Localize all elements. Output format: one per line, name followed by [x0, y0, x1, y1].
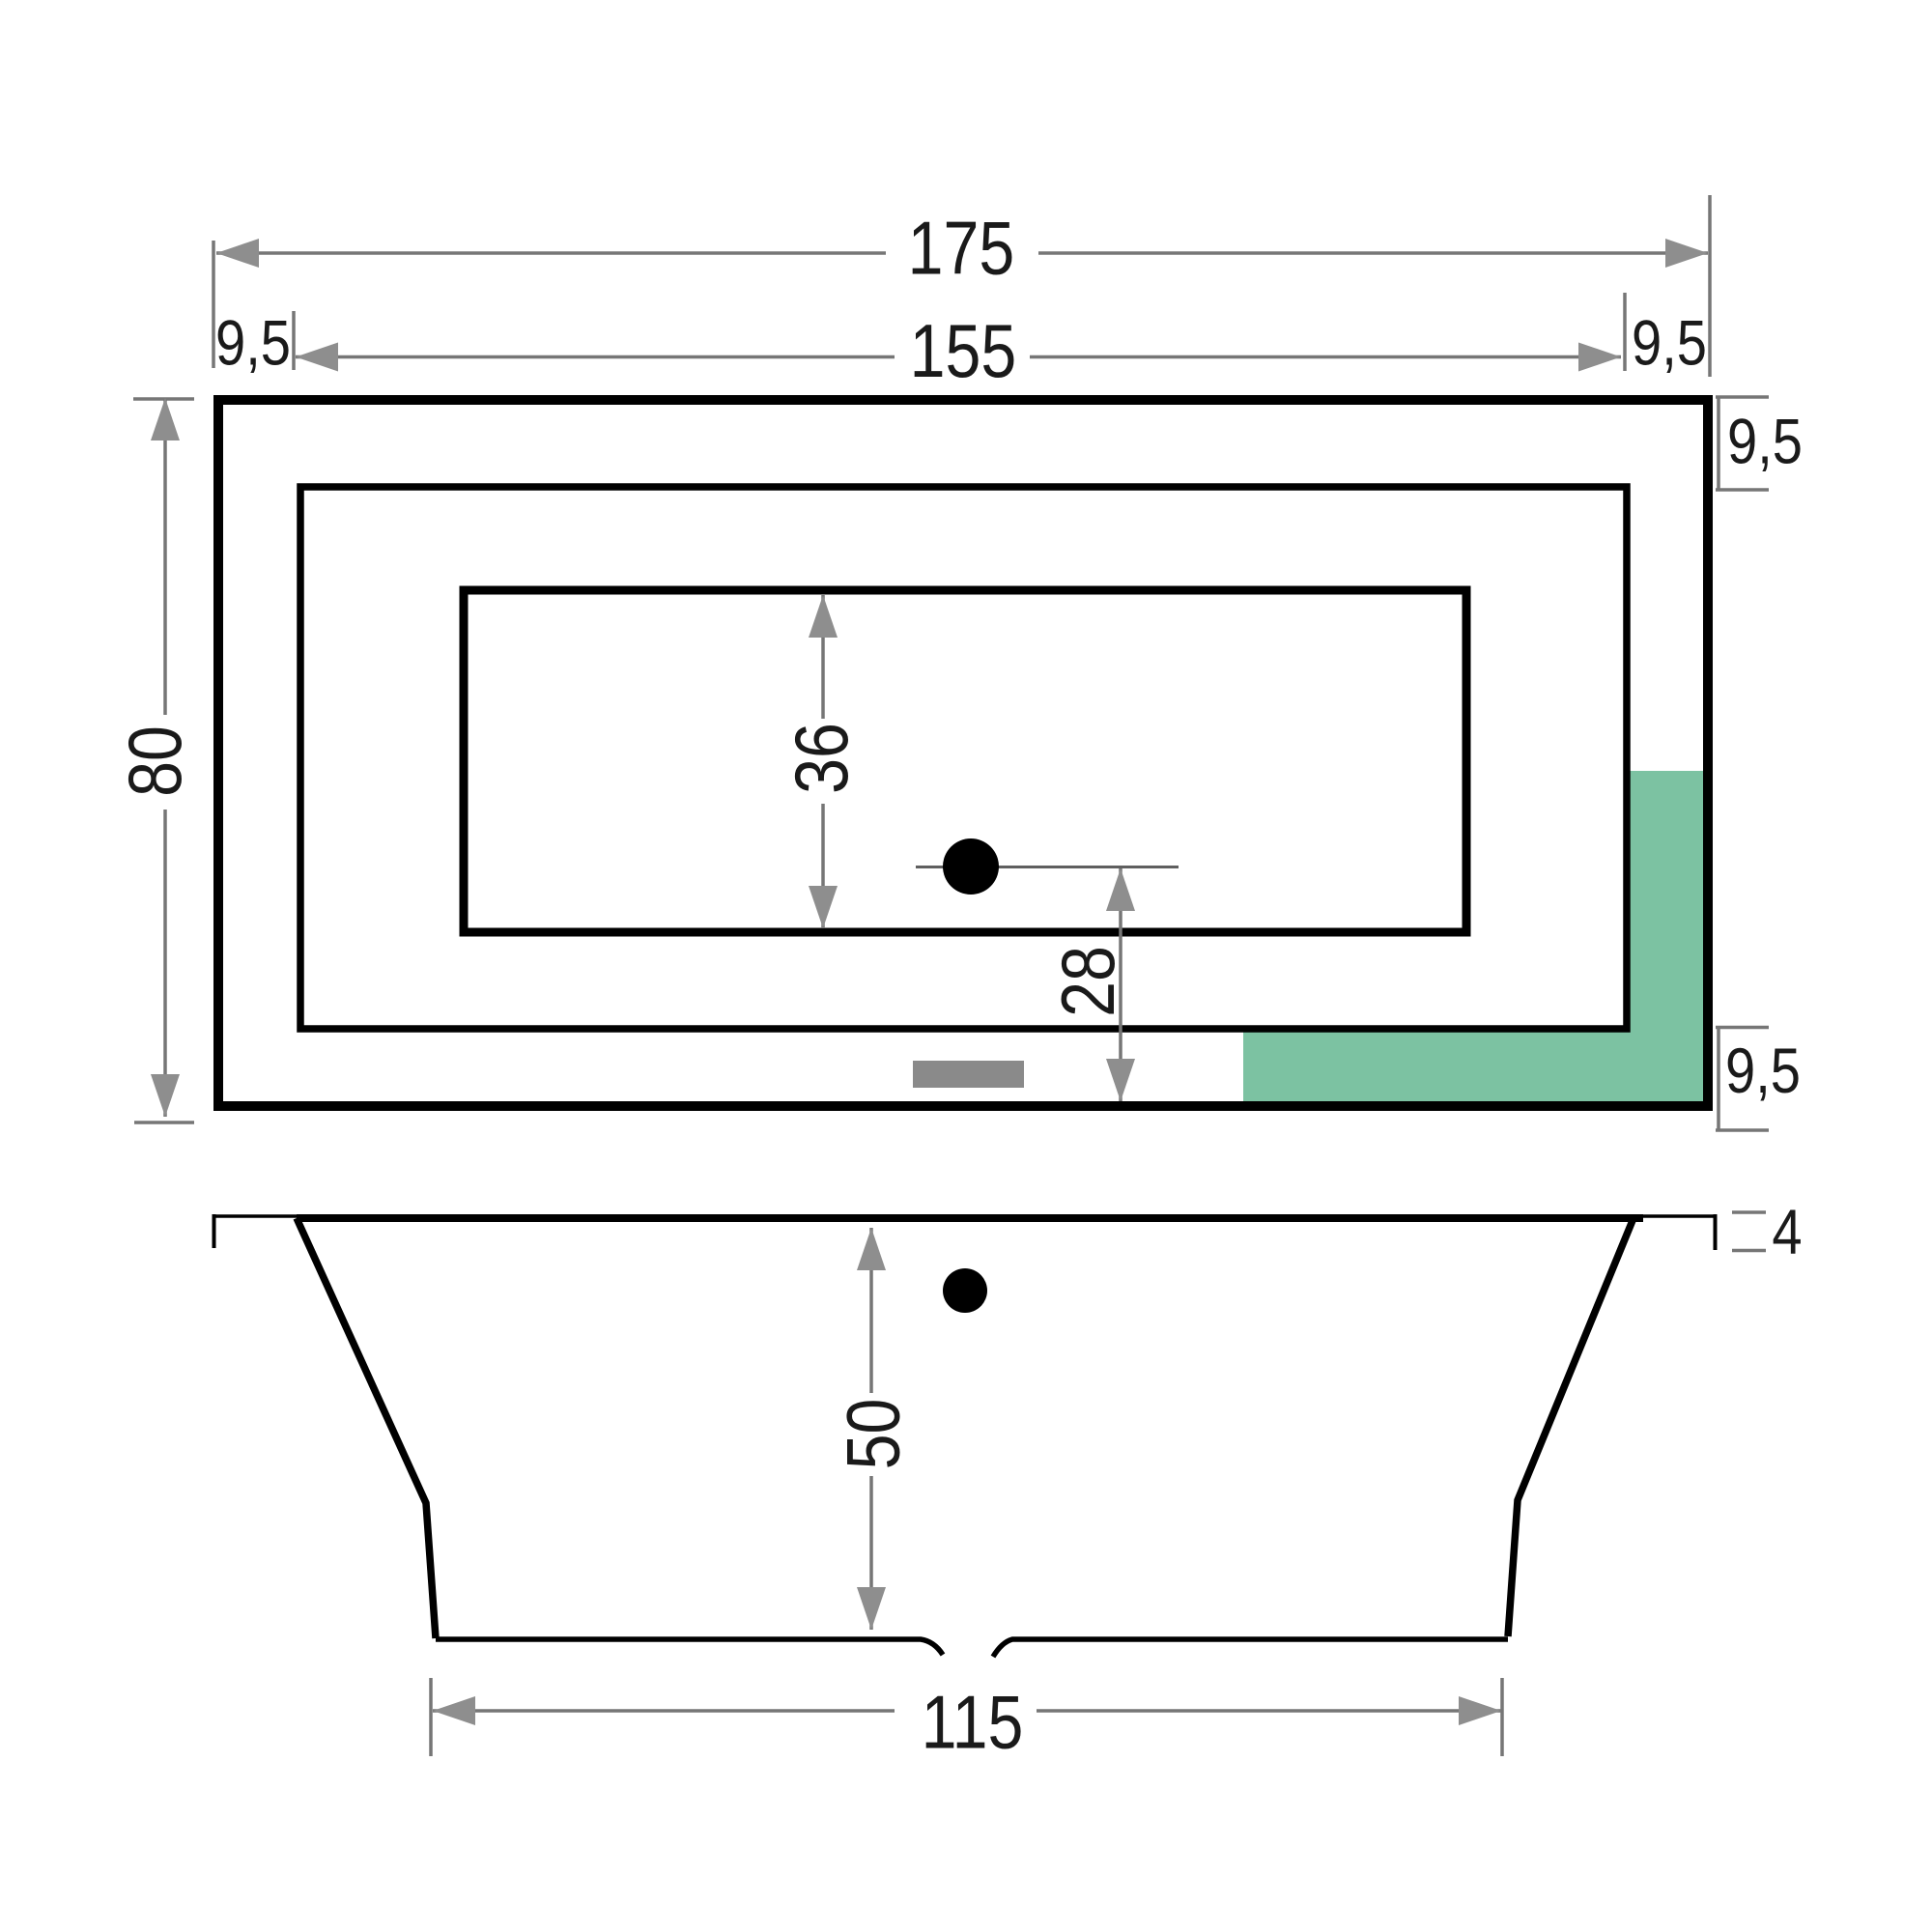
- svg-text:155: 155: [910, 309, 1017, 393]
- svg-text:115: 115: [922, 1680, 1024, 1764]
- svg-text:175: 175: [908, 206, 1015, 290]
- svg-text:28: 28: [1046, 946, 1130, 1017]
- svg-text:4: 4: [1772, 1197, 1802, 1267]
- svg-text:9,5: 9,5: [1632, 307, 1707, 378]
- svg-text:50: 50: [831, 1399, 915, 1470]
- svg-text:9,5: 9,5: [1727, 406, 1803, 476]
- svg-text:9,5: 9,5: [215, 307, 291, 378]
- svg-text:9,5: 9,5: [1725, 1036, 1801, 1106]
- svg-text:80: 80: [113, 725, 197, 797]
- svg-text:36: 36: [780, 723, 864, 794]
